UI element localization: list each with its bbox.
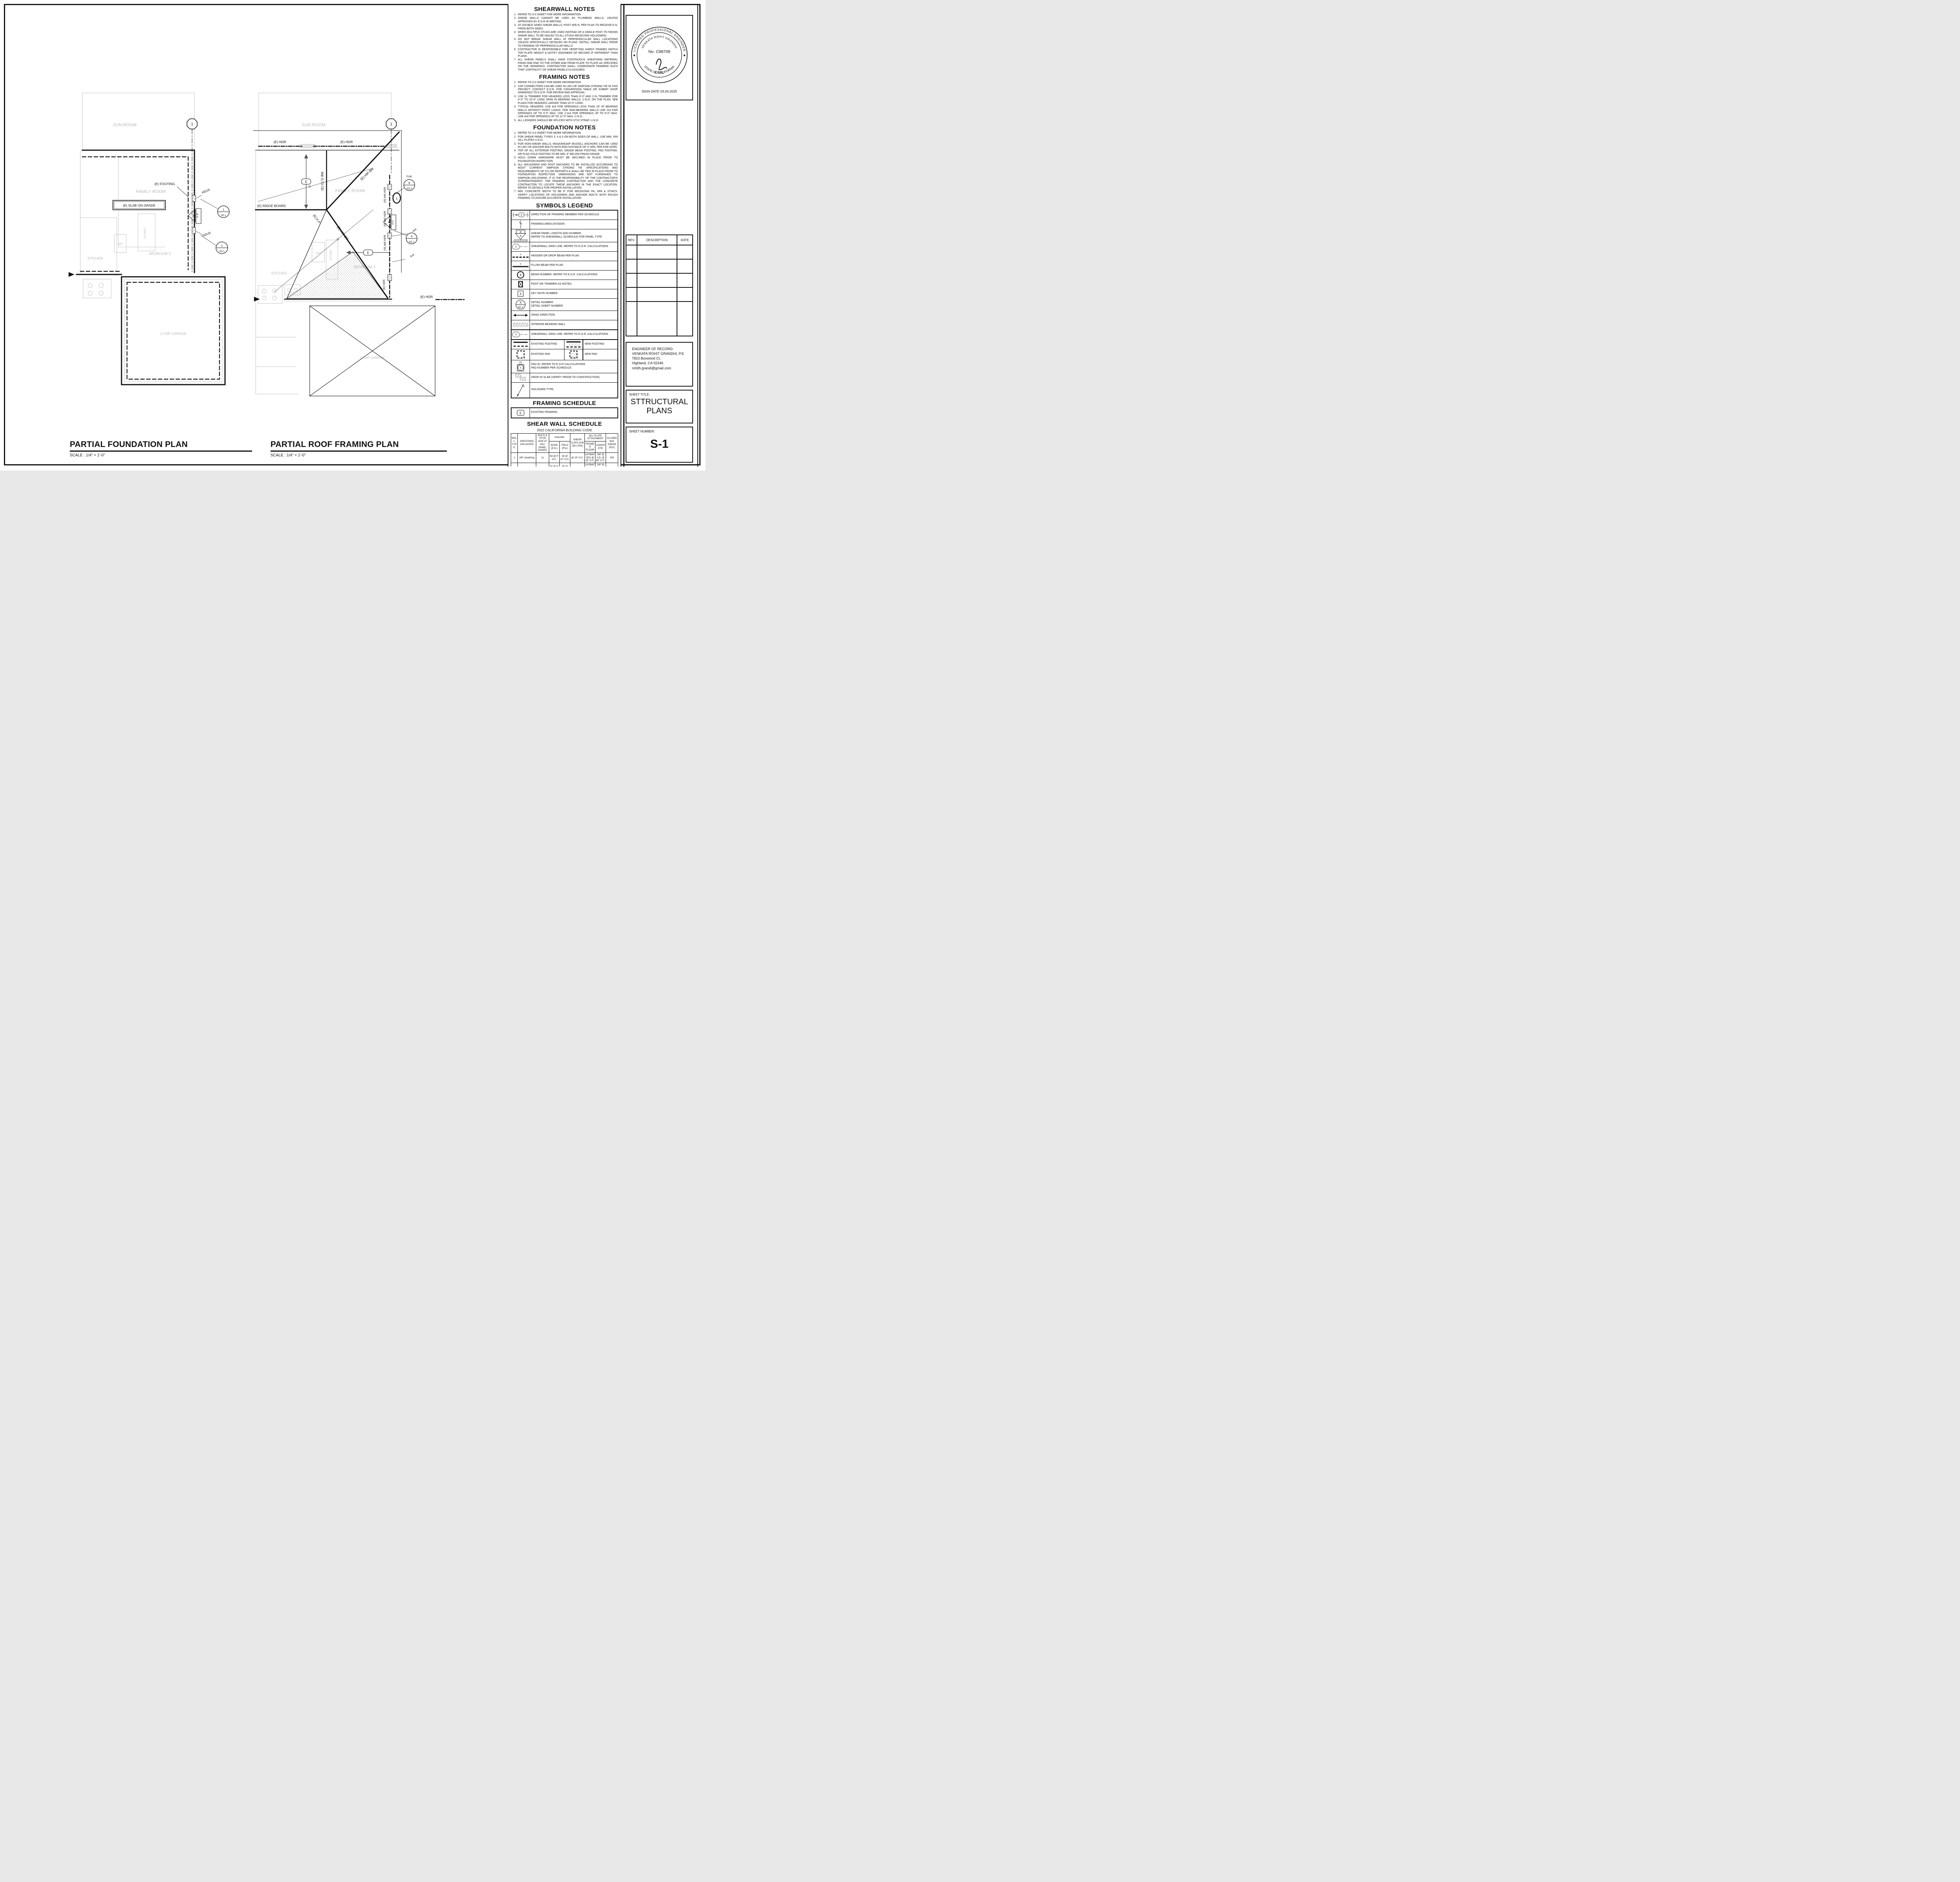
list-item: Highland, CA 92346 [632, 361, 691, 365]
svg-text:★: ★ [633, 53, 636, 57]
room-label: SUN ROOM [302, 123, 326, 127]
existing-pad-icon [512, 349, 530, 360]
hdr-label: (E) HDR [383, 280, 386, 290]
rev-row [626, 287, 693, 302]
svg-text:1: 1 [223, 208, 224, 211]
table-cell: 8d @ 6" O.C. [549, 453, 560, 463]
svg-text:No. C88709: No. C88709 [648, 49, 670, 54]
keynote-icon: X [512, 289, 530, 298]
col-header: ALLOWABLE SHEAR (PLF) [606, 433, 618, 453]
list-item: REFER TO S-0 SHEET FOR MORE INFORMATION. [517, 81, 618, 84]
drag-direction-icon [512, 311, 530, 320]
col-header: SILL PLATE ATTACHMENT [585, 433, 606, 441]
right-margin-line [697, 4, 698, 467]
legend-row: DRAG DIRECTION [512, 311, 617, 320]
room-label: REF [316, 252, 321, 255]
svg-text:3: 3 [388, 221, 389, 224]
table-cell: 8d @ 4" O.C. [549, 463, 560, 467]
table-cell: 1/4"Øx6" SDS @ 12" O.C. [585, 463, 595, 467]
col-header: BLK'G & STUD SIZE AT ADJ. PANEL EDGES [536, 433, 549, 453]
header-beam-icon: X [512, 252, 530, 261]
framing-notes-list: REFER TO S-0 SHEET FOR MORE INFORMATION.… [511, 81, 618, 122]
col-header: FRAMED FLOOR [585, 441, 595, 453]
svg-text:X: X [515, 246, 517, 249]
shearwall-notes-list: REFER TO S-0 SHEET FOR MORE INFORMATION.… [511, 13, 618, 72]
rev-row [626, 273, 693, 287]
foundation-plan-scale: SCALE : 1/4" = 1'-0" [70, 453, 105, 458]
svg-text:X: X [519, 301, 522, 304]
legend-row: X SHEARWALL GRID LINE, REFER TO E.O.R. C… [512, 242, 617, 251]
foundation-notes-list: REFER TO S-0 SHEET FOR MORE INFORMATION.… [511, 132, 618, 200]
list-item: SHEAR WALLS CANNOT BE USED AS PLUMBING W… [517, 17, 618, 24]
room-label: CLOSET [330, 249, 332, 260]
rev-row [626, 302, 693, 336]
table-cell: 5/8" Ø A.B. @ 42" O.C. [595, 463, 606, 467]
roof-plan-scale: SCALE : 1/4" = 1'-0" [270, 453, 306, 458]
col-header: WALL TYPE [511, 433, 518, 453]
shear-wall-schedule-subtitle: 2022 CALIFORNIA BUILDING CODE [511, 428, 618, 432]
legend-row: X FLUSH BEAM PER PLAN [512, 261, 617, 270]
framing-direction-icon: X [512, 211, 530, 220]
svg-text:1: 1 [390, 122, 392, 127]
legend-row: X SHEARWALL GRID LINE, REFER TO E.O.R. C… [512, 329, 617, 339]
table-cell: 2 [511, 463, 518, 467]
stamp-box: LICENSED PROFESSIONAL ENGINEER VENKATA R… [626, 15, 693, 100]
kp-label: (E) K.P. [312, 214, 321, 224]
svg-text:TYP.: TYP. [406, 175, 412, 178]
sheet-title-label: SHEET TITLE: [629, 393, 650, 396]
list-item: REFER TO S-0 SHEET FOR MORE INFORMATION. [517, 132, 618, 135]
room-label: 2 CAR GARAGE [160, 332, 187, 336]
svg-text:1: 1 [191, 122, 193, 127]
list-item: USP CONNECTORS CAN BE USED IN LIEU OF SI… [517, 85, 618, 95]
svg-text:X: X [520, 254, 521, 256]
revision-table: REV. DESCRIPTION DATE [626, 234, 693, 336]
list-item: HOLD DOWN HARDWARE MUST BE SECURED IN PL… [517, 156, 618, 163]
hdr-label: (E) HDR [420, 295, 433, 299]
list-item: VENKATA ROHIT GRANDHI, P.E [632, 351, 691, 356]
table-cell: 1 [511, 453, 518, 463]
room-label: FAMILY ROOM [335, 189, 365, 193]
existing-tag: E [367, 251, 369, 255]
detail-bubble: 2 SD.1 [201, 235, 228, 254]
shearwall-notes-title: SHEARWALL NOTES [511, 6, 618, 13]
foundation-plan: SUN ROOM FAMILY ROOM KITCHEN CLOSET REF … [69, 93, 229, 385]
existing-footing-icon [512, 340, 530, 349]
legend-row: X BEAM NUMBER, REFER TO E.O.R. CALCULATI… [512, 270, 617, 280]
pe-stamp: LICENSED PROFESSIONAL ENGINEER VENKATA R… [626, 16, 692, 99]
table-row: 23/8" sheathing3x8d @ 4" O.C.8d @ 12" O.… [511, 463, 618, 467]
room-label: FAMILY ROOM [136, 189, 165, 194]
list-item: CONTRACTOR IS RESPONSIBLE FOR VERIFYING … [517, 48, 618, 58]
area-division-icon [512, 220, 530, 229]
legend-row: X DIRECTION OF FRAMING MEMBER PER SCHEDU… [512, 211, 617, 220]
sheet-title: STTRUCTURAL PLANS [626, 398, 692, 416]
list-item: AT DOUBLE SIDED SHEAR WALLS, POST W/E.N.… [517, 24, 618, 31]
legend-row: XX SHEAR PANEL LENGTH AND NUMBER. REFER … [512, 229, 617, 242]
list-item: USE 2x TRIMMER FOR HEADERS LESS THAN 6'-… [517, 95, 618, 105]
svg-text:X: X [520, 263, 521, 265]
legend-row: HOLDOWN TYPE, [512, 382, 617, 398]
list-item: FOR NON-SHEAR WALLS, MASA/MASAP MUDSILL … [517, 143, 618, 149]
svg-text:X: X [520, 367, 522, 369]
col-header: SHEATHING APA-RATED [518, 433, 536, 453]
svg-text:X: X [519, 230, 521, 234]
room-label: 2 CAR GARAGE [360, 356, 385, 360]
clg-bm-label: (E) CL'G BM [320, 172, 324, 191]
svg-text:4'-0": 4'-0" [196, 213, 199, 218]
svg-text:SD.0: SD.0 [407, 188, 412, 190]
table-cell: 1/4"Øx6" SDS @ 16" O.C. [585, 453, 595, 463]
symbols-legend: X DIRECTION OF FRAMING MEMBER PER SCHEDU… [511, 210, 618, 398]
plans-canvas: SUN ROOM FAMILY ROOM KITCHEN CLOSET REF … [4, 4, 508, 467]
engineer-of-record: ENGINEER OF RECORD:VENKATA ROHIT GRANDHI… [626, 342, 693, 387]
detail-bubble: 1 SD.1 [201, 199, 229, 218]
room-label: SUN ROOM [113, 123, 137, 127]
framing-schedule: E EXISTING FRAMING [511, 407, 618, 418]
new-pad-icon [564, 349, 583, 360]
table-cell: 2x [536, 453, 549, 463]
sheet-number: S-1 [626, 438, 692, 451]
table-cell: 3x [536, 463, 549, 467]
foundation-notes-title: FOUNDATION NOTES [511, 124, 618, 131]
table-cell: 3/8" sheathing [518, 463, 536, 467]
shearwall-bubble: 1 [396, 197, 398, 200]
svg-text:(E) SLAB ON GRADE: (E) SLAB ON GRADE [123, 203, 155, 207]
shear-wall-schedule-title: SHEAR WALL SCHEDULE [511, 421, 618, 427]
legend-row: X HEADER OR DROP BEAM PER PLAN [512, 251, 617, 261]
new-hdr-label: (N) 4x6 HDR [384, 235, 387, 251]
svg-text:#X: #X [519, 361, 523, 364]
existing-tag: E [305, 180, 307, 184]
svg-text:X: X [519, 234, 521, 237]
post-label: 4x4 [410, 253, 415, 258]
framing-schedule-title: FRAMING SCHEDULE [511, 400, 618, 407]
bearing-wall-icon [512, 320, 530, 329]
table-cell: 8d @ 12" O.C. [560, 453, 570, 463]
svg-text:★: ★ [683, 53, 686, 57]
flush-beam-icon: X [512, 261, 530, 270]
svg-text:X: X [521, 214, 523, 217]
room-label: KITCHEN [271, 271, 287, 275]
shearwall-gridline-icon: X [512, 330, 530, 339]
col-header: SHEAR CLIPS (A35 OR LTP4) [570, 433, 585, 453]
col-header: CONCRETE [595, 441, 606, 453]
post-label: 4x4 [412, 228, 417, 233]
room-label: KITCHEN [87, 256, 103, 260]
holdown-label: HDU5 [202, 231, 211, 238]
table-row: 13/8" sheathing2x8d @ 6" O.C.8d @ 12" O.… [511, 453, 618, 463]
rev-col-header: DATE [677, 235, 693, 245]
hdr-label: (E) HDR [340, 140, 353, 144]
rev-row [626, 259, 693, 273]
svg-text:X: X [519, 292, 522, 296]
list-item: rohith.grandi@gmail.com [632, 366, 691, 371]
detail-bubble-icon: XSD.X [512, 299, 530, 311]
section-cut-icon [254, 297, 260, 302]
legend-row: EXISTING FOOTING NEW FOOTING [512, 339, 617, 349]
list-item: REFER TO S-0 SHEET FOR MORE INFORMATION. [517, 13, 618, 16]
svg-text:LICENSED PROFESSIONAL ENGINEER: LICENSED PROFESSIONAL ENGINEER [633, 28, 686, 52]
list-item: FOR SHEAR PANEL TYPES 3, 4 & 5 ON BOTH S… [517, 136, 618, 142]
roof-framing-plan: SUN ROOM FAMILY ROOM KITCHEN CLOSET REF … [253, 93, 465, 396]
svg-text:CIVIL: CIVIL [655, 71, 664, 75]
table-cell: 260 [606, 453, 618, 463]
existing-framing-icon: E [512, 408, 530, 418]
table-cell: @ 16" O.C. [570, 463, 585, 467]
legend-row: X KEY NOTE NUMBER [512, 289, 617, 298]
svg-text:X: X [519, 273, 522, 277]
hip-label: (E) HIP BM [336, 225, 350, 241]
svg-text:4: 4 [411, 234, 412, 238]
svg-text:E: E [519, 411, 521, 415]
notes-column: SHEARWALL NOTES REFER TO S-0 SHEET FOR M… [508, 4, 621, 467]
hip-label: (E) HIP BM [359, 167, 374, 182]
framing-notes-title: FRAMING NOTES [511, 74, 618, 80]
shear-panel-icon: XX [512, 229, 530, 242]
svg-text:SD.X: SD.X [518, 307, 523, 309]
svg-text:2: 2 [221, 244, 223, 247]
legend-row: DROP IN SLAB (VERIFY PRIOR TO CONSTRUCTI… [512, 373, 617, 382]
list-item: MIN. CONCRETE WIDTH TO BE 8" FOR RECEIVI… [517, 190, 618, 200]
legend-row: POST OR TRIMMER AS NOTED [512, 280, 617, 289]
pad-id-icon: #XX [512, 360, 530, 373]
col-header: EDGE (E.N.) [549, 441, 560, 453]
list-item: 7823 Boxwood Ct, [632, 356, 691, 361]
titleblock-divider [623, 4, 624, 467]
list-item: ALL SHEAR PANELS SHALL HAVE CONTINUOUS S… [517, 58, 618, 72]
holdown-icon [512, 383, 530, 398]
hdr-label: (E) HDR [274, 140, 286, 144]
col-header: NAILING [549, 433, 570, 441]
shear-wall-schedule-table: WALL TYPE SHEATHING APA-RATED BLK'G & ST… [511, 433, 618, 467]
holdown-label: HDU5 [201, 188, 211, 194]
list-item: ALL HOLDOWNS AND POST ANCHORS TO BE INST… [517, 163, 618, 190]
rev-col-header: REV. [626, 235, 637, 245]
beam-number-icon: X [512, 271, 530, 280]
slab-label: (E) SLAB ON GRADE [113, 200, 165, 210]
svg-text:SD.1: SD.1 [409, 241, 414, 243]
room-label: REF [118, 243, 123, 245]
foundation-plan-title: PARTIAL FOUNDATION PLAN [70, 440, 252, 452]
col-header: FIELD (F.N.) [560, 441, 570, 453]
list-item: DO NOT BREAK SHEAR WALL AT PERPENDICULAR… [517, 38, 618, 48]
roof-plan-title: PARTIAL ROOF FRAMING PLAN [270, 440, 447, 452]
room-label: BEDROOM 3 [149, 252, 171, 256]
post-trimmer-icon [512, 280, 530, 289]
section-cut-icon [69, 272, 74, 277]
drop-in-slab-icon [512, 373, 530, 382]
list-item: TOP OF ALL EXTERIOR FOOTING, GRADE BEAM … [517, 149, 618, 156]
table-cell: 8d @ 12" O.C. [560, 463, 570, 467]
svg-text:4'-0": 4'-0" [392, 220, 394, 225]
sheet-number-label: SHEET NUMBER: [629, 430, 655, 433]
legend-row: XSD.X DETAIL NUMBER DETAIL SHEET NUMBER [512, 298, 617, 311]
rev-row [626, 245, 693, 259]
svg-text:X: X [515, 333, 517, 336]
table-cell: 3/8" sheathing [518, 453, 536, 463]
shearwall-gridline-icon: X [512, 242, 530, 251]
symbols-legend-title: SYMBOLS LEGEND [511, 202, 618, 209]
table-cell: @ 24" O.C. [570, 453, 585, 463]
new-hdr-label: (N) 4x6 HDR [384, 187, 387, 203]
list-item: TYPICAL HEADERS: USE 4x4 FOR OPENINGS LE… [517, 105, 618, 119]
svg-text:3: 3 [192, 215, 194, 218]
svg-text:SD.1: SD.1 [219, 251, 225, 253]
sheet-title-box: SHEET TITLE: STTRUCTURAL PLANS [626, 390, 693, 423]
legend-row: FRAMING AREA DIVISION [512, 220, 617, 229]
list-item: WHEN MULTIPLE STUDS ARE USED INSTEAD OF … [517, 31, 618, 38]
room-label: CLOSET [144, 227, 147, 239]
table-cell: 5/8" Ø A.B. @ 48" O.C. [595, 453, 606, 463]
svg-text:8: 8 [408, 181, 410, 185]
sheet-number-box: SHEET NUMBER: S-1 [626, 427, 693, 463]
list-item: ALL LEDGERS SHOULD BE SPLICED WITH ST22 … [517, 119, 618, 122]
legend-row: #XX PAD ID, REFER TO E.O.R CALCULATIONS … [512, 360, 617, 373]
table-cell: 380 [606, 463, 618, 467]
new-footing-icon [564, 340, 583, 349]
legend-row: EXISTING PAD NEW PAD [512, 349, 617, 360]
rev-col-header: DESCRIPTION [637, 235, 677, 245]
signature [656, 59, 667, 70]
ridge-label: (E) RIDGE BOARD [257, 204, 286, 208]
footing-label: (E) FOOTING [154, 182, 175, 186]
svg-text:SD.1: SD.1 [221, 214, 226, 217]
drawing-sheet: SUN ROOM FAMILY ROOM KITCHEN CLOSET REF … [0, 0, 706, 470]
sign-date: SIGN DATE 03.04.2025 [642, 89, 677, 93]
legend-row: INTERIOR BEARING WALL [512, 320, 617, 329]
list-item: ENGINEER OF RECORD: [632, 347, 691, 351]
